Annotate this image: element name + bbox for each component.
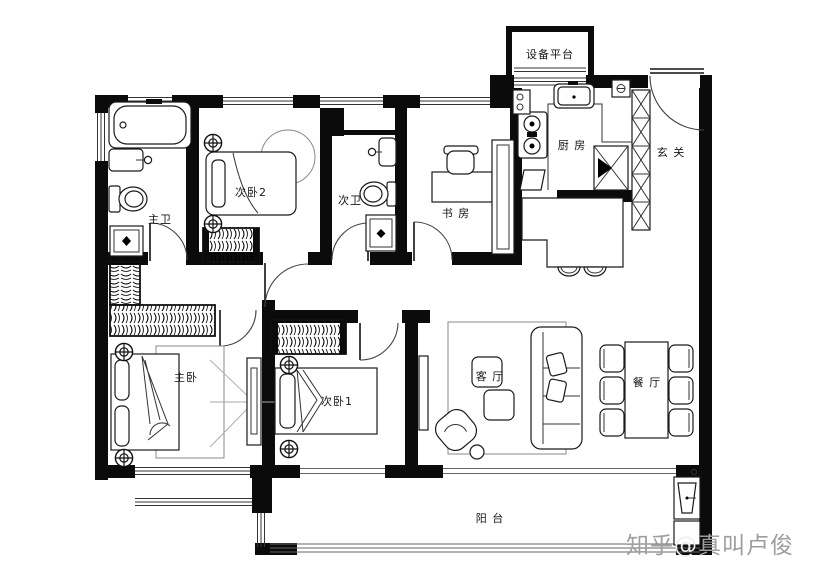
toilet-2 (360, 182, 396, 206)
dining-chair (669, 377, 693, 404)
socket-symbol (204, 134, 221, 151)
window-master-bedroom (135, 465, 250, 478)
label-study: 书 房 (442, 207, 471, 220)
sofa (531, 327, 582, 449)
watermark-site: 知乎 (626, 533, 674, 559)
floor-plan-svg: 设备平台 厨 房 玄 关 次卧2 次卫 书 房 主卫 主卧 次卧1 客 厅 餐 … (0, 0, 828, 578)
folding-step (520, 170, 545, 190)
shower-drain (110, 226, 143, 256)
study-door (412, 222, 452, 265)
wash-basin (109, 149, 152, 171)
window-top-3 (320, 95, 383, 108)
desk (432, 172, 492, 202)
shower-drain-2 (366, 215, 396, 251)
socket-symbol (280, 440, 297, 457)
label-living-room: 客 厅 (476, 369, 505, 383)
master-bath-door (148, 223, 187, 265)
label-dining-room: 餐 厅 (633, 375, 662, 389)
toilet (109, 186, 147, 212)
socket-symbol (115, 343, 132, 360)
dining-chair (669, 345, 693, 372)
label-kitchen: 厨 房 (558, 139, 587, 152)
bar-counter (522, 198, 623, 267)
wardrobe-bedroom1 (272, 320, 346, 354)
label-bath2: 次卫 (338, 193, 362, 207)
window-master-bath (95, 113, 108, 161)
kitchen-sink (554, 81, 594, 108)
dining-table (625, 342, 668, 438)
bath2-door (332, 223, 370, 265)
socket-symbol (115, 449, 132, 466)
socket-symbol (280, 356, 297, 373)
kitchen-fixtures (513, 80, 632, 276)
laundry-sink (674, 470, 700, 520)
label-bedroom2: 次卧2 (235, 185, 267, 199)
bedroom2-furniture (206, 130, 315, 215)
water-heater (513, 90, 530, 114)
master-bedroom-furniture (111, 346, 278, 458)
tv-living (419, 356, 428, 430)
bar-stool (584, 267, 606, 276)
stove (518, 112, 547, 158)
bathtub (109, 99, 191, 148)
living-room-furniture (419, 322, 582, 459)
bed-bedroom2 (206, 152, 296, 215)
coffee-table (484, 390, 514, 420)
entry-door (648, 69, 704, 130)
wash-basin-2 (368, 138, 396, 166)
dining-chair (669, 409, 693, 436)
bookcase (492, 140, 514, 254)
window-top-4 (420, 95, 490, 108)
bedroom2-door (263, 252, 308, 307)
label-balcony: 阳 台 (476, 511, 505, 525)
label-master-bath: 主卫 (148, 213, 172, 226)
dining-chair (600, 377, 624, 404)
watermark-at-icon: @ (674, 533, 698, 559)
bath2-fixtures (360, 138, 396, 251)
tv-panel-master (247, 358, 261, 445)
watermark: 知乎@真叫卢俊 (626, 533, 794, 559)
entry-closet (632, 90, 650, 230)
window-bay-low (135, 499, 252, 506)
bedroom1-door (358, 310, 402, 360)
label-bedroom1: 次卧1 (321, 394, 353, 408)
watermark-author: 真叫卢俊 (698, 533, 794, 559)
window-balcony-left (258, 513, 265, 547)
small-appliance (612, 80, 630, 97)
label-entry: 玄 关 (657, 145, 686, 159)
fridge (594, 146, 628, 190)
window-top-2 (223, 95, 293, 108)
dining-chair (600, 409, 624, 436)
label-master-bedroom: 主卧 (174, 371, 198, 384)
socket-symbol (204, 215, 221, 232)
master-bedroom-door (220, 310, 256, 346)
bed-master (111, 354, 179, 450)
dining-chair (600, 345, 624, 372)
bar-stool (558, 267, 580, 276)
wardrobe-master (110, 262, 215, 336)
floor-plan-page: 设备平台 厨 房 玄 关 次卧2 次卫 书 房 主卫 主卧 次卧1 客 厅 餐 … (0, 0, 828, 578)
dining-furniture (600, 342, 693, 438)
desk-chair (444, 146, 478, 174)
label-equipment-platform: 设备平台 (526, 47, 574, 61)
balcony-sliding-doors (300, 469, 678, 474)
